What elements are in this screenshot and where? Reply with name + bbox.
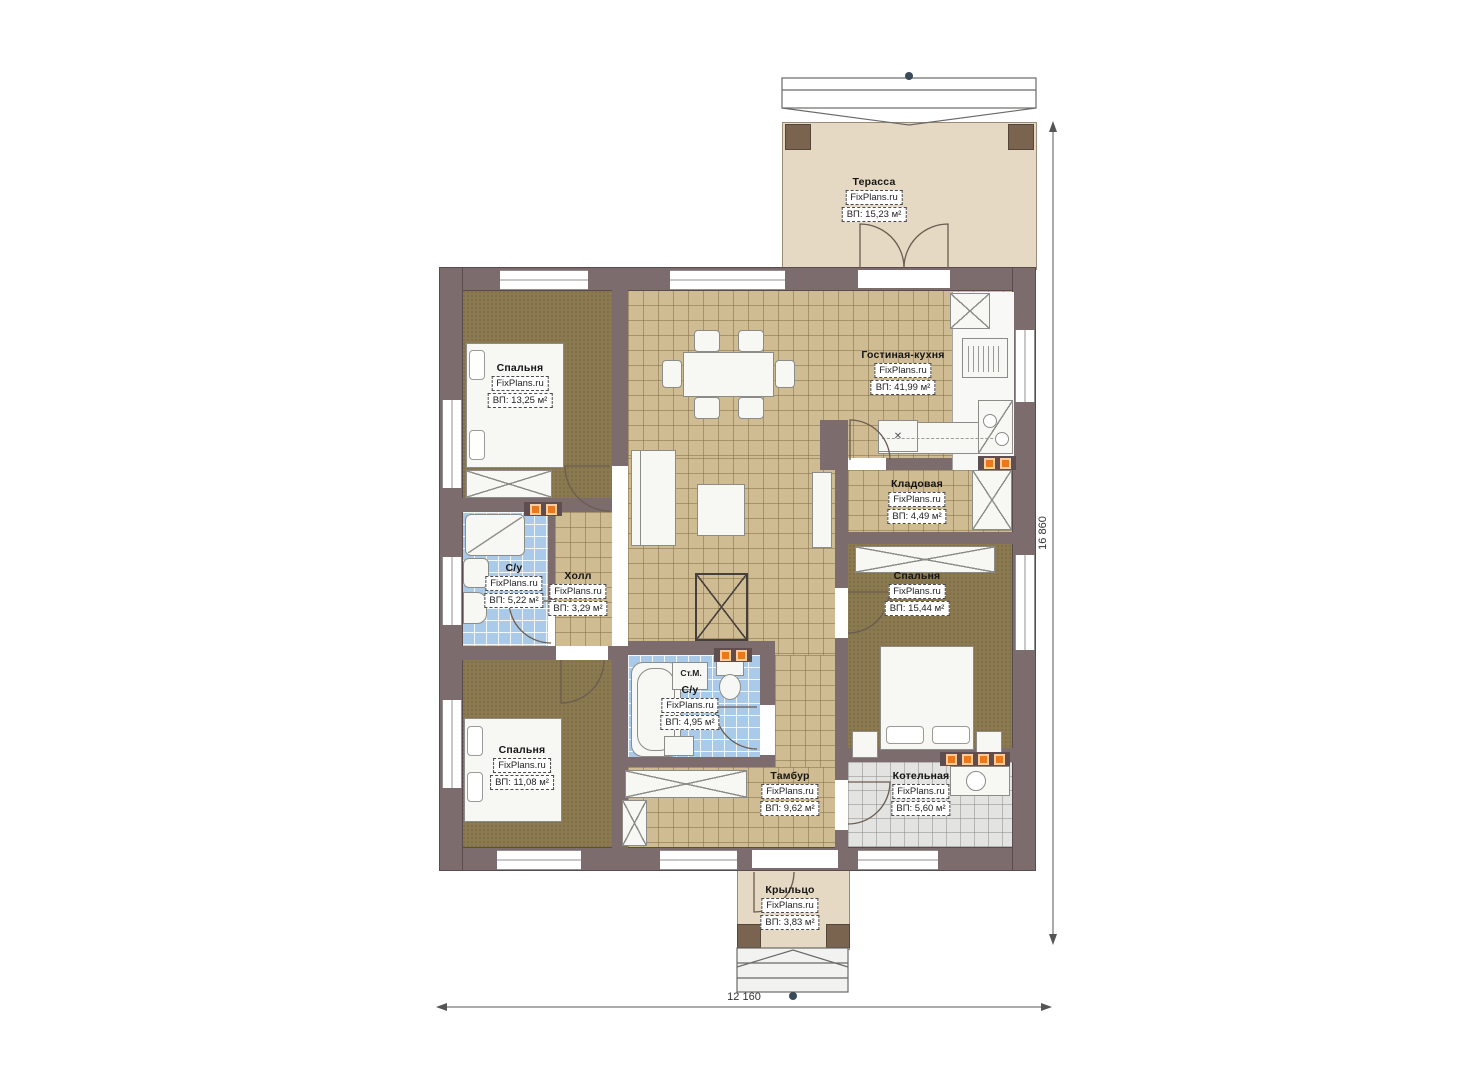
canopy-anchor-dot [905,72,913,80]
room-area: ВП: 15,23 м² [842,207,907,222]
room-area: ВП: 15,44 м² [885,601,950,616]
room-label-hall: Холл FixPlans.ru ВП: 3,29 м² [548,570,607,616]
room-area: ВП: 13,25 м² [488,393,553,408]
storage-door [850,420,890,460]
room-label-boiler-room: Котельная FixPlans.ru ВП: 5,60 м² [891,770,950,816]
room-name: Крыльцо [760,884,819,896]
plan-linework: 16 860 12 160 [0,0,1474,1080]
room-name: Гостиная-кухня [861,349,944,361]
terrace-door-right [904,224,948,268]
room-label-bathroom-middle: С/у FixPlans.ru ВП: 4,95 м² [660,684,719,730]
room-label-storage: Кладовая FixPlans.ru ВП: 4,49 м² [887,478,946,524]
dimension-bottom-value: 12 160 [727,991,761,1003]
room-brand: FixPlans.ru [892,784,950,799]
room-brand: FixPlans.ru [549,584,607,599]
room-area: ВП: 3,29 м² [548,601,607,616]
room-label-terrace: Терасса FixPlans.ru ВП: 15,23 м² [842,176,907,222]
room-area: ВП: 41,99 м² [871,380,936,395]
bath2-door [715,707,757,749]
room-label-living-kitchen: Гостиная-кухня FixPlans.ru ВП: 41,99 м² [861,349,944,395]
room-brand: FixPlans.ru [845,190,903,205]
room-area: ВП: 5,22 м² [484,593,543,608]
room-area: ВП: 3,83 м² [760,915,819,930]
room-name: С/у [484,562,543,574]
room-name: Терасса [842,176,907,188]
room-brand: FixPlans.ru [661,698,719,713]
dimension-right-value: 16 860 [1037,516,1049,550]
room-brand: FixPlans.ru [888,584,946,599]
washing-machine-label: Ст.М. [680,668,701,678]
room-name: С/у [660,684,719,696]
room-name: Тамбур [760,770,819,782]
room-brand: FixPlans.ru [493,758,551,773]
room-area: ВП: 9,62 м² [760,801,819,816]
room-label-porch: Крыльцо FixPlans.ru ВП: 3,83 м² [760,884,819,930]
room-brand: FixPlans.ru [761,898,819,913]
room-brand: FixPlans.ru [874,363,932,378]
room-label-bedroom-bottom-left: Спальня FixPlans.ru ВП: 11,08 м² [490,744,554,790]
room-brand: FixPlans.ru [485,576,543,591]
door-arcs [509,224,948,912]
room-name: Холл [548,570,607,582]
steps-anchor-dot [789,992,797,1000]
room-area: ВП: 4,49 м² [887,509,946,524]
terrace-door-left [860,224,904,268]
room-label-bedroom-top-left: Спальня FixPlans.ru ВП: 13,25 м² [488,362,553,408]
dimension-bottom: 12 160 [436,991,1052,1011]
room-name: Котельная [891,770,950,782]
dimension-right: 16 860 [1037,121,1057,945]
terrace-canopy [782,78,1036,125]
bedroom1-door [565,466,610,511]
boiler-door [848,782,890,824]
bedroom2-door [848,592,889,633]
room-label-tambour: Тамбур FixPlans.ru ВП: 9,62 м² [760,770,819,816]
room-brand: FixPlans.ru [491,376,549,391]
room-brand: FixPlans.ru [888,492,946,507]
room-area: ВП: 5,60 м² [891,801,950,816]
bedroom3-door [561,660,604,703]
room-brand: FixPlans.ru [761,784,819,799]
room-name: Спальня [488,362,553,374]
room-label-bedroom-right: Спальня FixPlans.ru ВП: 15,44 м² [885,570,950,616]
room-label-bathroom-left: С/у FixPlans.ru ВП: 5,22 м² [484,562,543,608]
room-name: Спальня [885,570,950,582]
room-name: Спальня [490,744,554,756]
room-area: ВП: 4,95 м² [660,715,719,730]
porch-steps [737,948,848,992]
room-name: Кладовая [887,478,946,490]
floor-plan-canvas: ✕ [0,0,1474,1080]
room-area: ВП: 11,08 м² [490,775,554,790]
